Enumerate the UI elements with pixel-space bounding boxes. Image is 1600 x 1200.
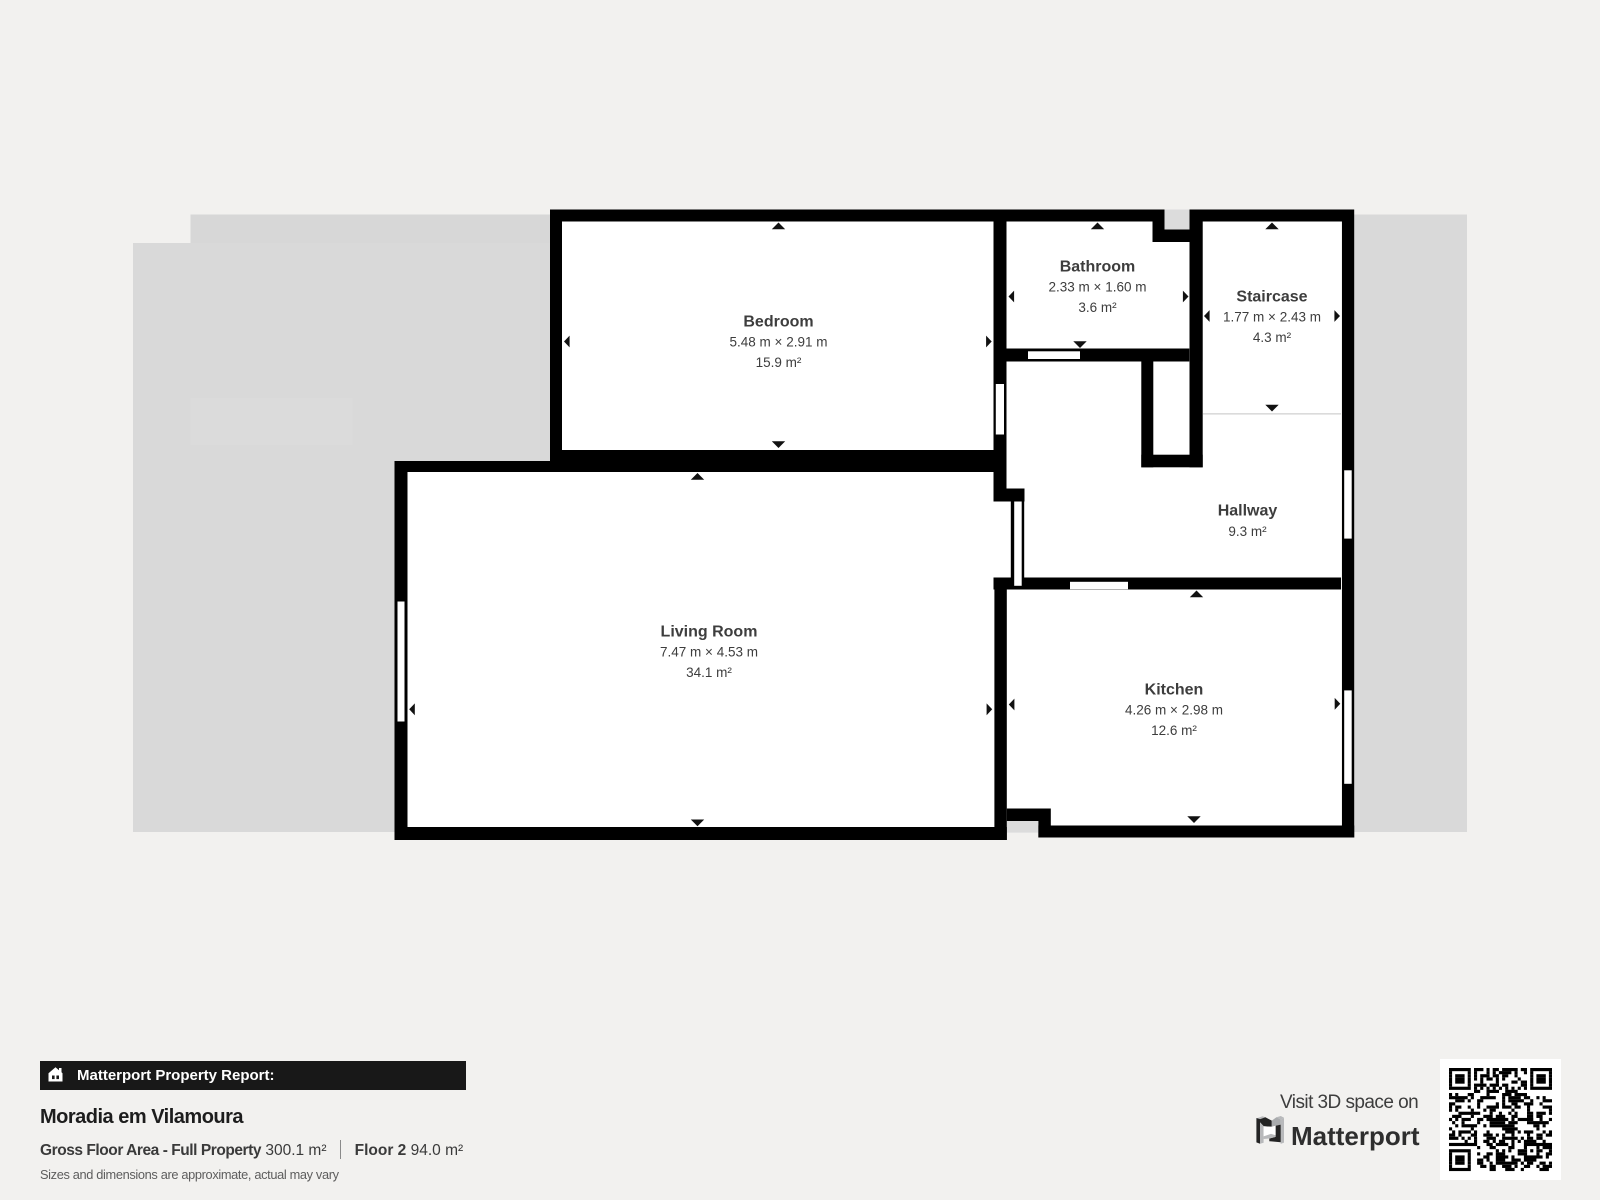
svg-text:Living Room: Living Room: [661, 624, 758, 641]
svg-text:5.48 m × 2.91 m: 5.48 m × 2.91 m: [730, 335, 828, 350]
svg-text:Bedroom: Bedroom: [743, 314, 813, 331]
svg-text:2.33 m × 1.60 m: 2.33 m × 1.60 m: [1049, 280, 1147, 295]
svg-text:34.1 m²: 34.1 m²: [686, 665, 732, 680]
svg-text:9.3 m²: 9.3 m²: [1228, 524, 1267, 539]
svg-text:Bathroom: Bathroom: [1060, 259, 1136, 276]
svg-text:7.47 m × 4.53 m: 7.47 m × 4.53 m: [660, 645, 758, 660]
svg-text:4.26 m × 2.98 m: 4.26 m × 2.98 m: [1125, 703, 1223, 718]
svg-text:12.6 m²: 12.6 m²: [1151, 723, 1197, 738]
svg-text:1.77 m × 2.43 m: 1.77 m × 2.43 m: [1223, 310, 1321, 325]
svg-text:15.9 m²: 15.9 m²: [756, 355, 802, 370]
svg-text:4.3 m²: 4.3 m²: [1253, 330, 1292, 345]
svg-text:Staircase: Staircase: [1236, 289, 1307, 306]
svg-text:3.6 m²: 3.6 m²: [1078, 300, 1117, 315]
svg-text:Kitchen: Kitchen: [1145, 682, 1204, 699]
svg-text:Hallway: Hallway: [1218, 503, 1278, 520]
